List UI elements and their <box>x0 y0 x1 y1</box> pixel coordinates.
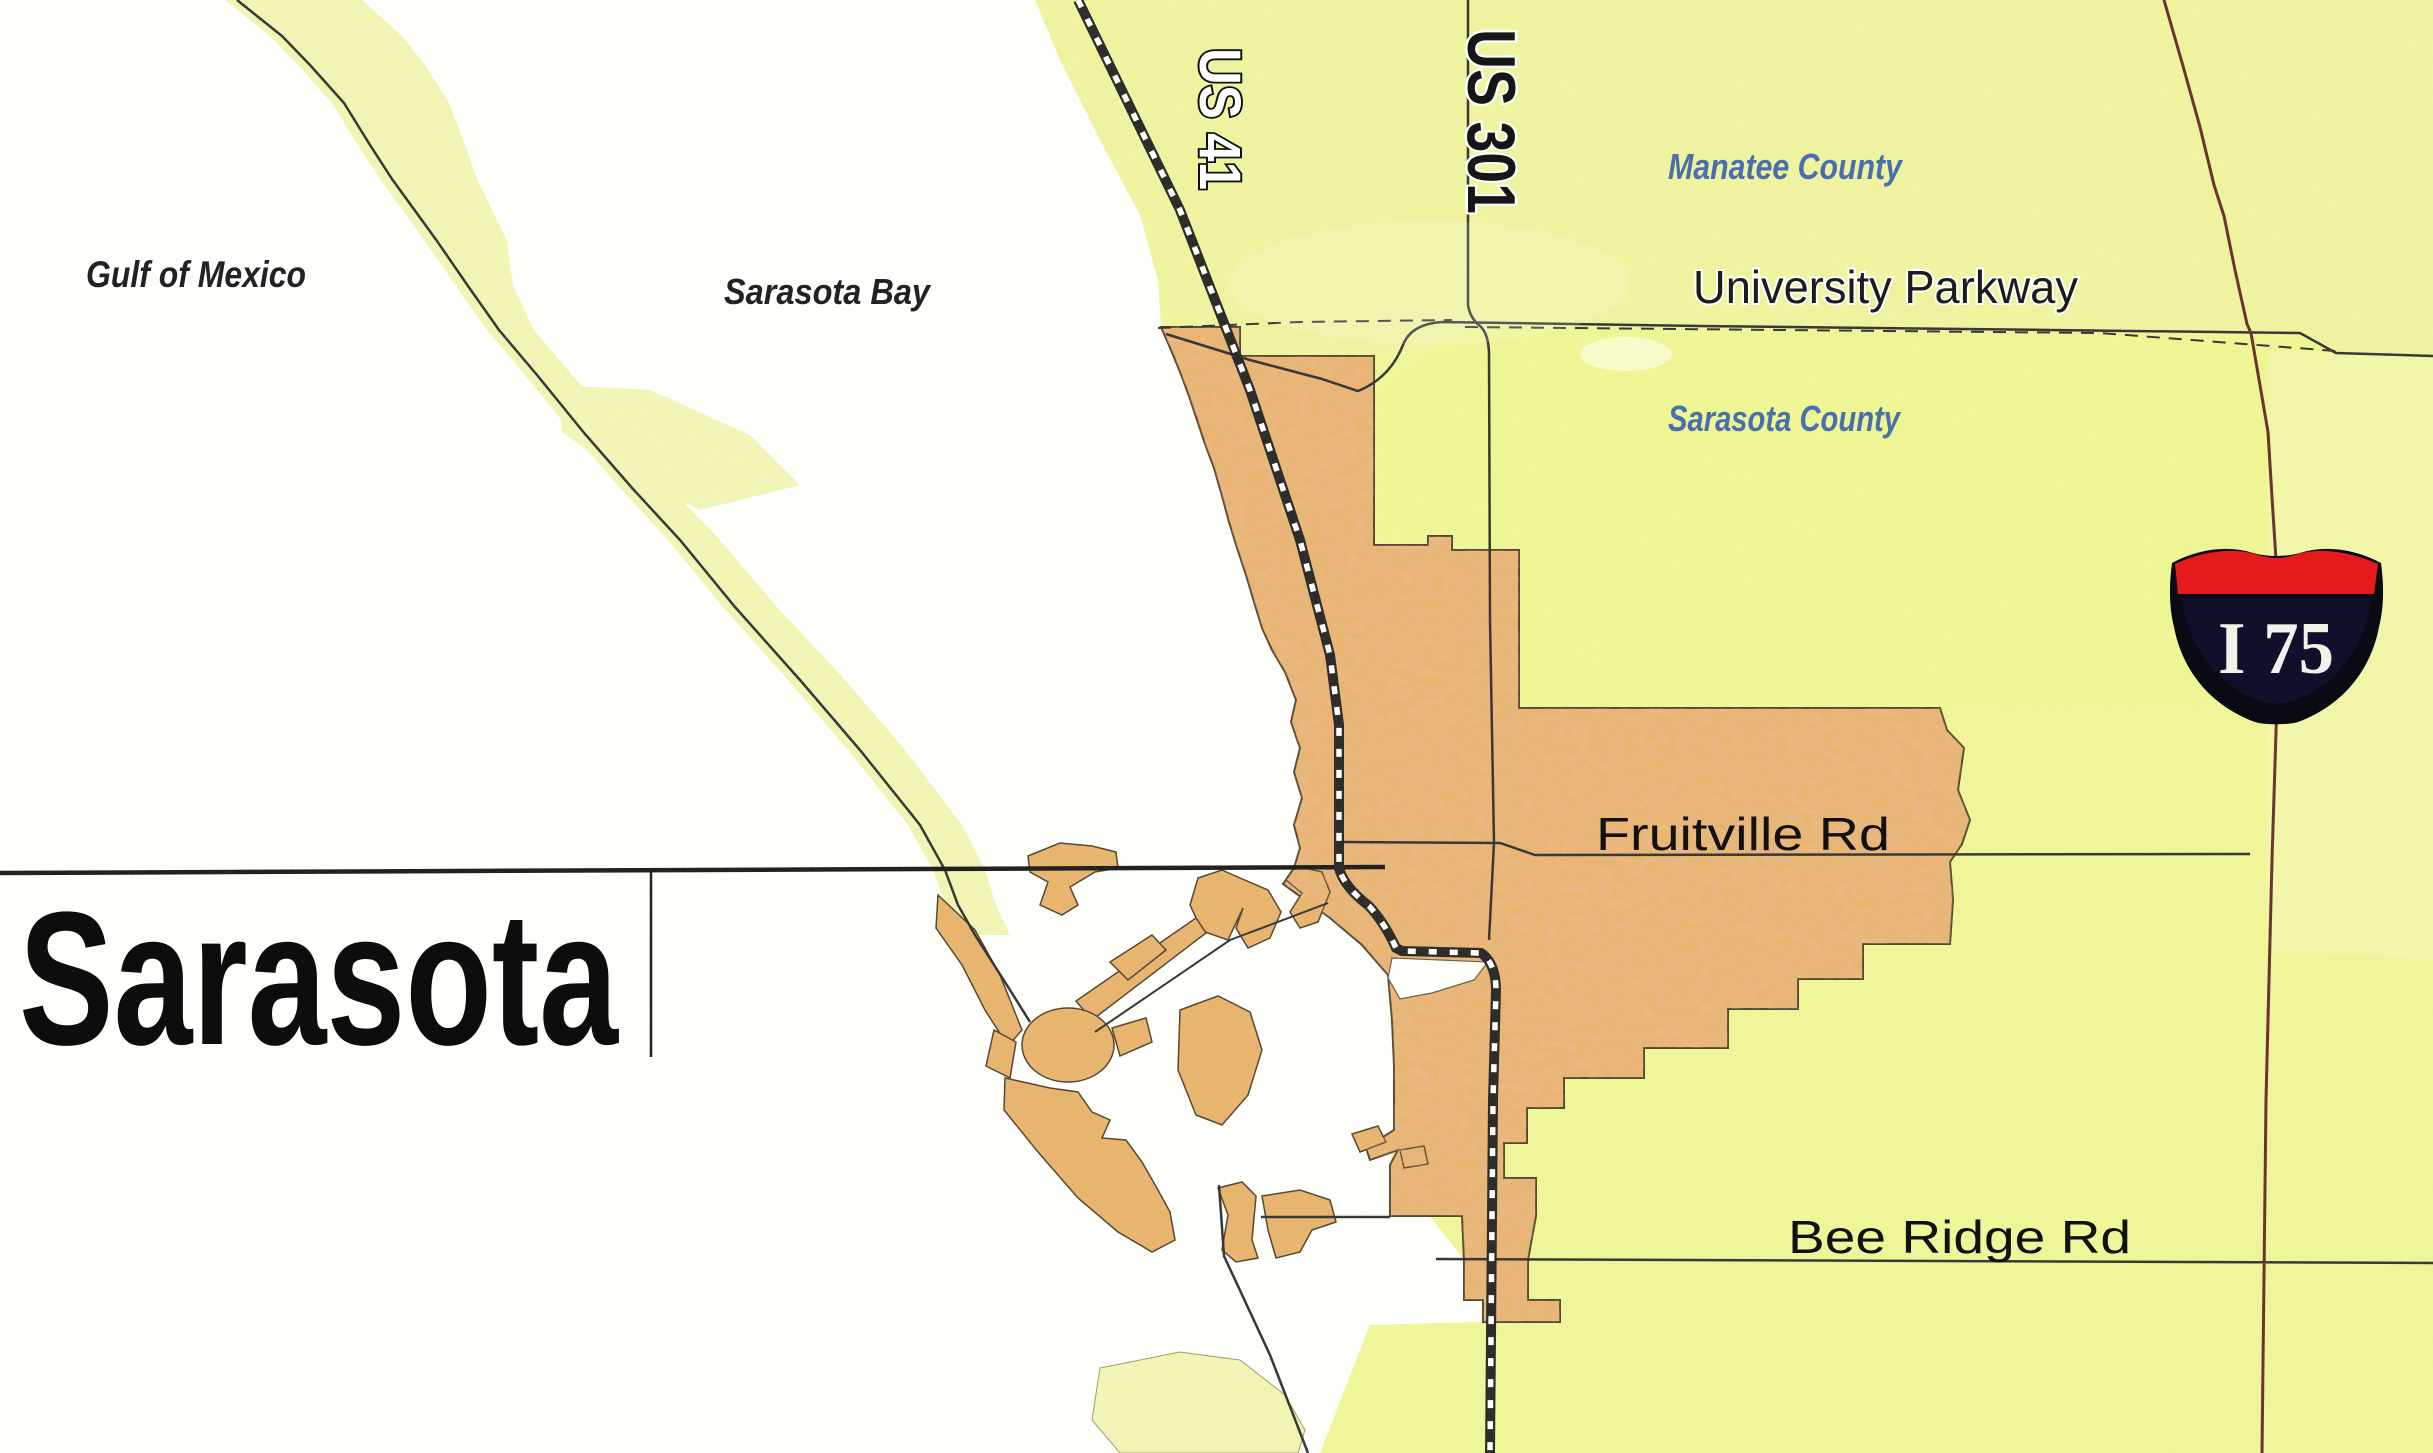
svg-text:Sarasota Bay: Sarasota Bay <box>724 271 932 312</box>
svg-text:University Parkway: University Parkway <box>1693 261 2078 313</box>
svg-text:Fruitville Rd: Fruitville Rd <box>1596 808 1890 860</box>
svg-text:US 41: US 41 <box>1187 48 1252 190</box>
svg-text:Gulf of Mexico: Gulf of Mexico <box>86 254 306 295</box>
svg-text:Sarasota: Sarasota <box>19 873 619 1085</box>
svg-text:US 301: US 301 <box>1453 29 1529 214</box>
svg-text:Bee Ridge Rd: Bee Ridge Rd <box>1788 1211 2131 1263</box>
svg-text:Manatee County: Manatee County <box>1668 146 1904 187</box>
svg-text:Sarasota County: Sarasota County <box>1668 398 1902 439</box>
svg-text:I 75: I 75 <box>2218 608 2334 690</box>
